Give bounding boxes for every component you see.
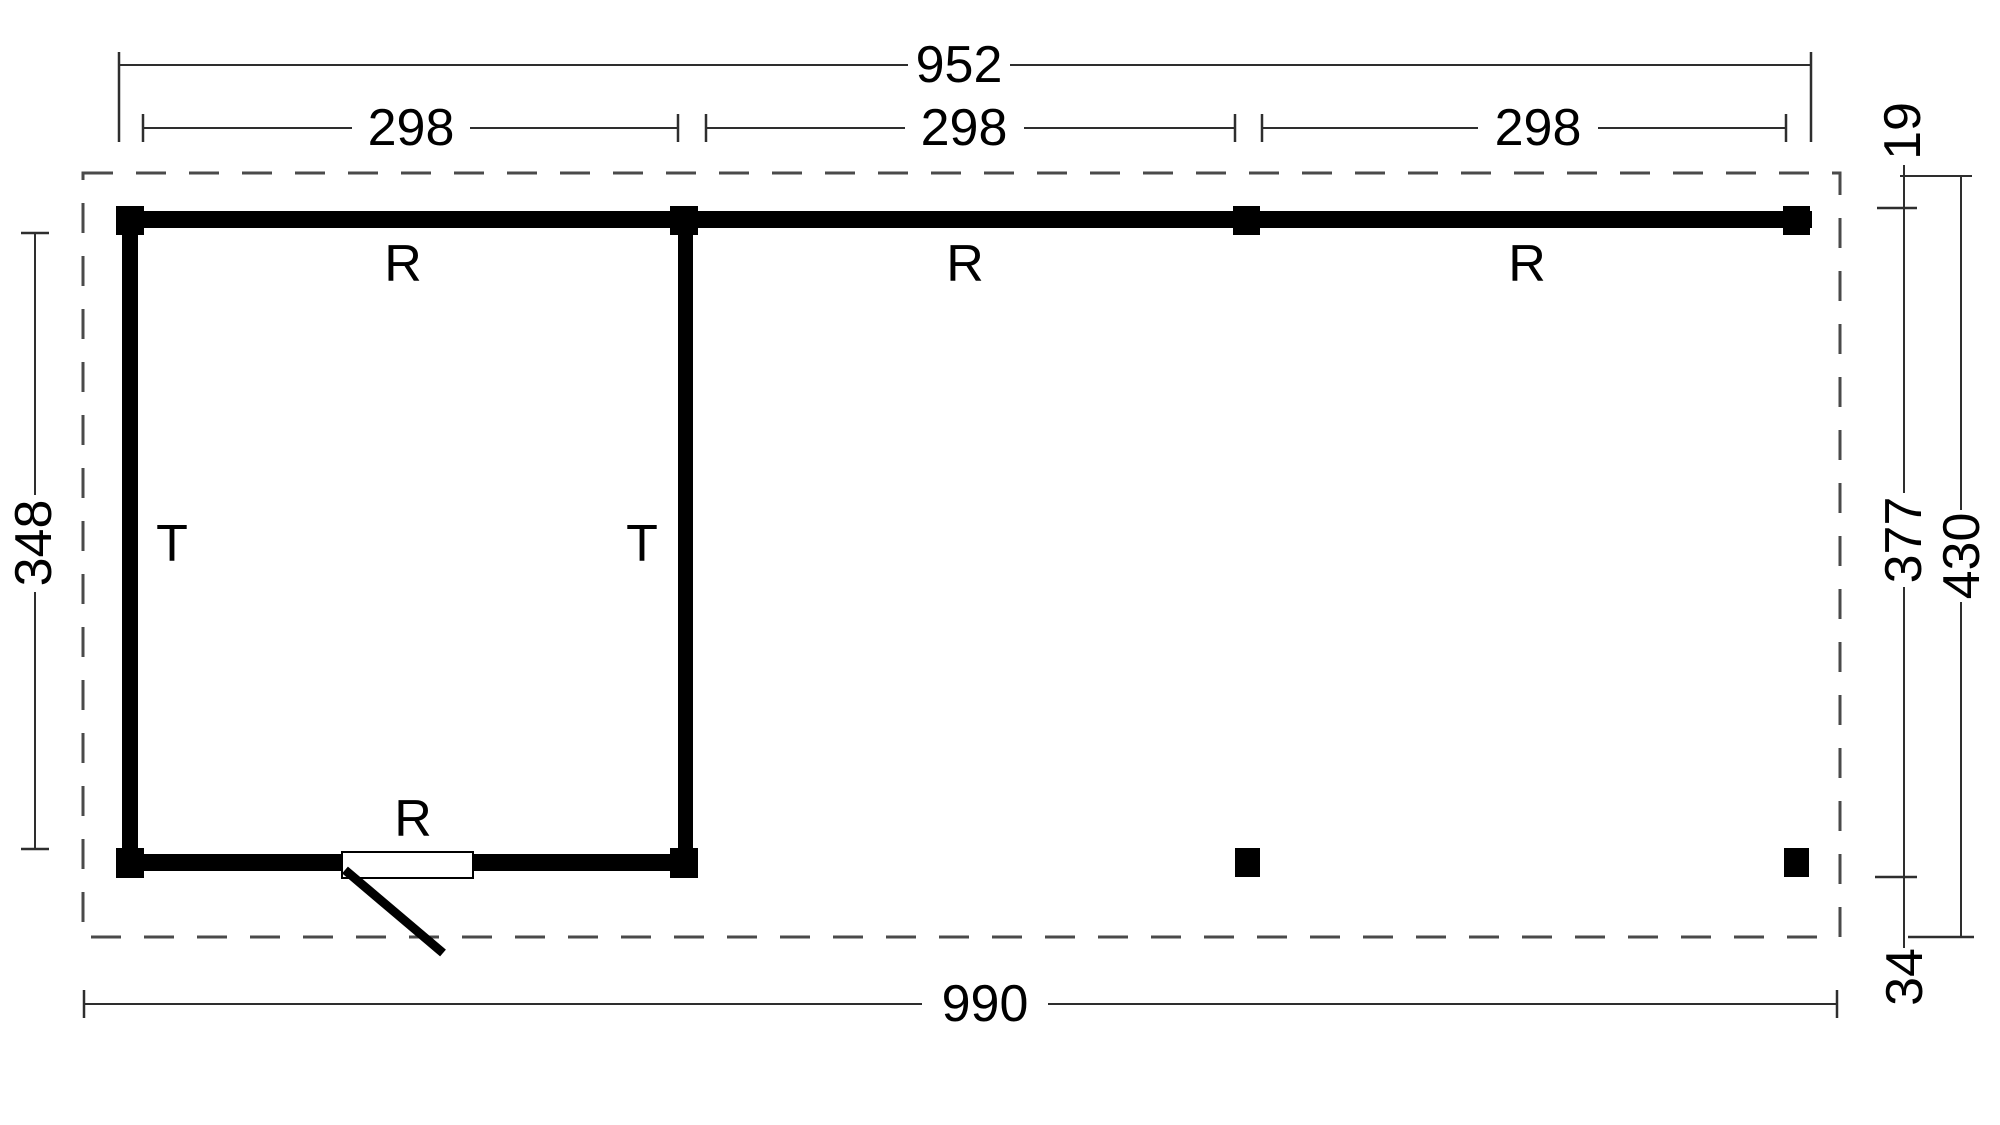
- posts: [116, 206, 1810, 878]
- dim-value-34: 34: [1876, 948, 1934, 1006]
- dim-value-990: 990: [942, 975, 1029, 1033]
- middle-wall: [678, 215, 693, 871]
- label-wall-left: T: [156, 515, 188, 573]
- door-swing-line: [345, 870, 443, 953]
- dimension-bay-1: 298: [143, 99, 678, 157]
- post-beam-end: [1783, 206, 1810, 235]
- dim-value-19: 19: [1874, 102, 1932, 160]
- dimension-bay-2: 298: [706, 99, 1235, 157]
- dimension-left-height: 348: [5, 233, 63, 849]
- top-beam: [117, 211, 1812, 228]
- post-free-mid: [1235, 848, 1260, 877]
- post-beam-mid: [1233, 206, 1260, 235]
- floor-plan-drawing: 952 298 298 298 348: [0, 0, 2000, 1125]
- dim-value-377: 377: [1875, 497, 1933, 584]
- label-room-bottom-beam: R: [394, 790, 432, 848]
- dimension-bottom-total: 990: [84, 975, 1837, 1033]
- dim-value-952: 952: [916, 36, 1003, 94]
- label-beam-left: R: [384, 235, 422, 293]
- dim-value-298-3: 298: [1495, 99, 1582, 157]
- dimension-bay-3: 298: [1262, 99, 1786, 157]
- post-top-left: [116, 206, 144, 235]
- floor-plan: 952 298 298 298 348: [0, 0, 2000, 1125]
- walls: [117, 211, 1812, 871]
- door-leaf: [342, 852, 473, 878]
- post-free-right: [1784, 848, 1809, 877]
- dimension-right-stack: 19 377 430 34: [1874, 102, 1991, 1006]
- label-wall-middle: T: [626, 515, 658, 573]
- component-labels: R R R R T T: [156, 235, 1546, 848]
- dim-value-348: 348: [5, 500, 63, 587]
- left-wall: [122, 215, 138, 871]
- dim-value-430: 430: [1933, 513, 1991, 600]
- post-bottom-middle: [670, 848, 698, 878]
- dim-value-298-2: 298: [921, 99, 1008, 157]
- label-beam-right: R: [1508, 235, 1546, 293]
- post-top-middle: [670, 206, 698, 235]
- label-beam-middle: R: [946, 235, 984, 293]
- dim-value-298-1: 298: [368, 99, 455, 157]
- post-bottom-left: [116, 848, 144, 878]
